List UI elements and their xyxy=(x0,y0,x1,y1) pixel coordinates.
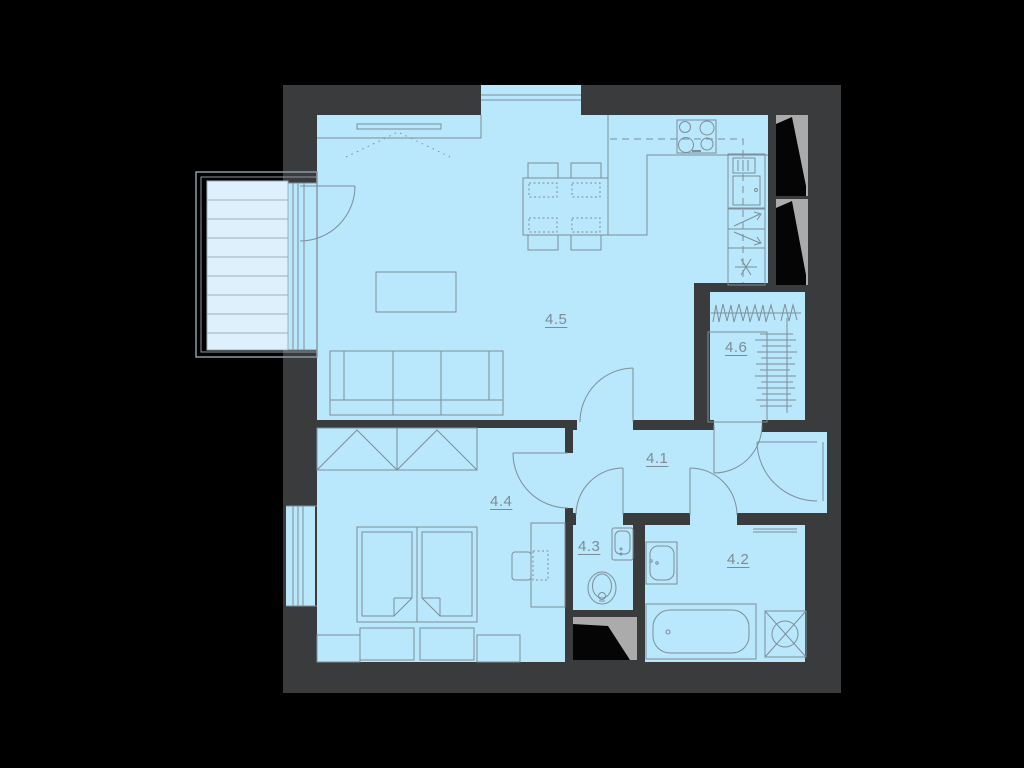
room-bedroom xyxy=(317,428,565,662)
balcony-deck xyxy=(207,181,288,350)
shaft-top-icon xyxy=(776,115,808,196)
floor-plan: 4.1 4.2 4.3 4.4 4.5 4.6 xyxy=(0,0,1024,768)
shaft-bottom-icon xyxy=(573,617,637,660)
room-label-living: 4.5 xyxy=(545,311,567,328)
room-bathroom xyxy=(645,525,805,662)
room-label-bedroom: 4.4 xyxy=(490,493,512,510)
room-living xyxy=(317,115,694,420)
room-label-hallway: 4.1 xyxy=(646,450,668,467)
shaft-mid-icon xyxy=(776,199,808,285)
room-floors xyxy=(286,85,827,662)
room-kitchen-nook xyxy=(694,115,768,283)
floor-plan-drawing xyxy=(0,0,1024,768)
room-hallway xyxy=(573,430,745,513)
balcony-window-strip xyxy=(288,183,317,350)
room-label-bathroom: 4.2 xyxy=(727,551,749,568)
room-label-wc: 4.3 xyxy=(578,538,600,555)
bedroom-window-strip xyxy=(286,506,315,606)
room-label-closet: 4.6 xyxy=(725,339,747,356)
